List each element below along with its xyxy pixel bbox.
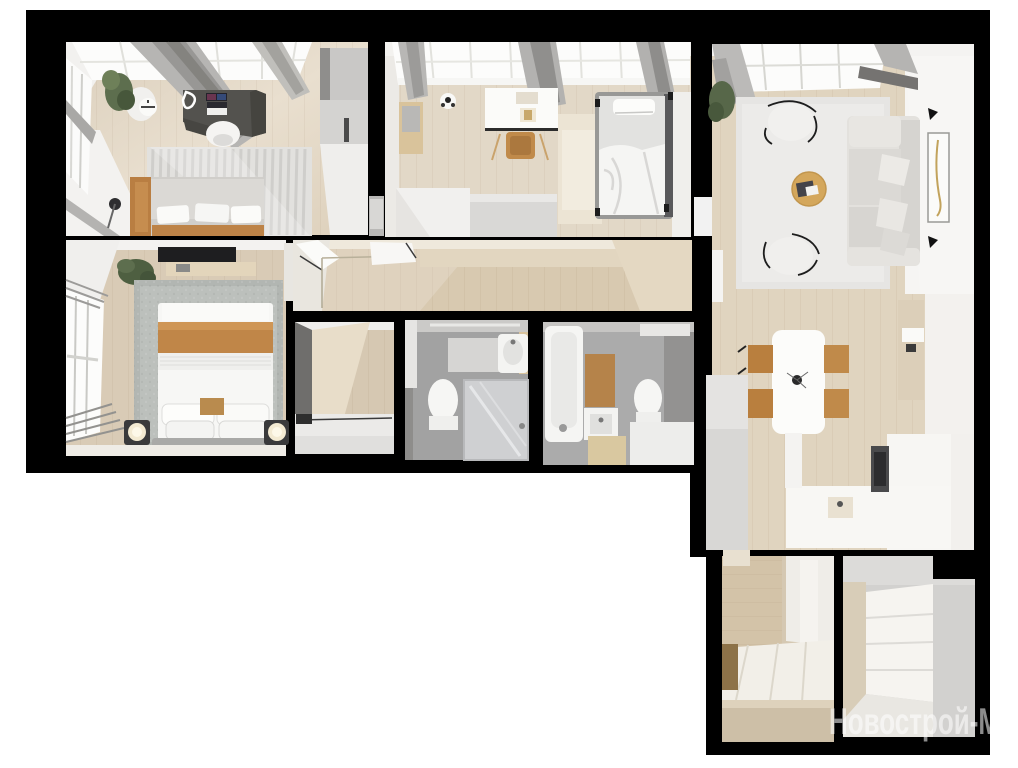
svg-text:Новострой-М: Новострой-М — [829, 701, 1000, 742]
